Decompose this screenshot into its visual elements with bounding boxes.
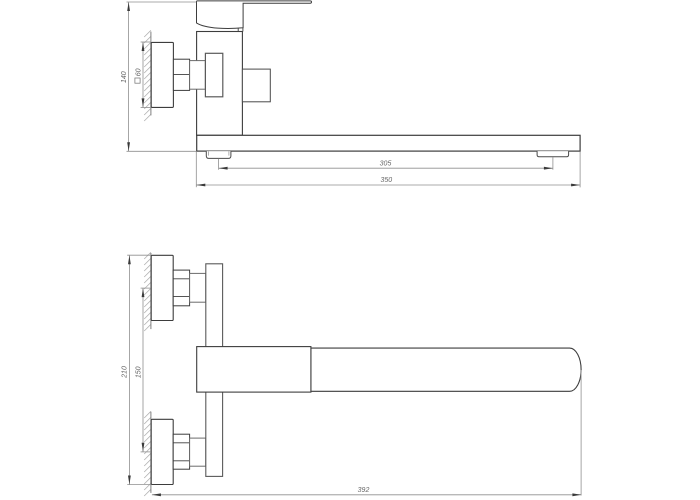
svg-text:392: 392 <box>358 487 370 494</box>
svg-text:305: 305 <box>380 160 392 167</box>
svg-text:210: 210 <box>121 366 128 379</box>
svg-text:150: 150 <box>135 366 142 378</box>
svg-text:60: 60 <box>135 68 142 76</box>
svg-text:140: 140 <box>121 71 128 83</box>
svg-text:350: 350 <box>380 177 392 184</box>
